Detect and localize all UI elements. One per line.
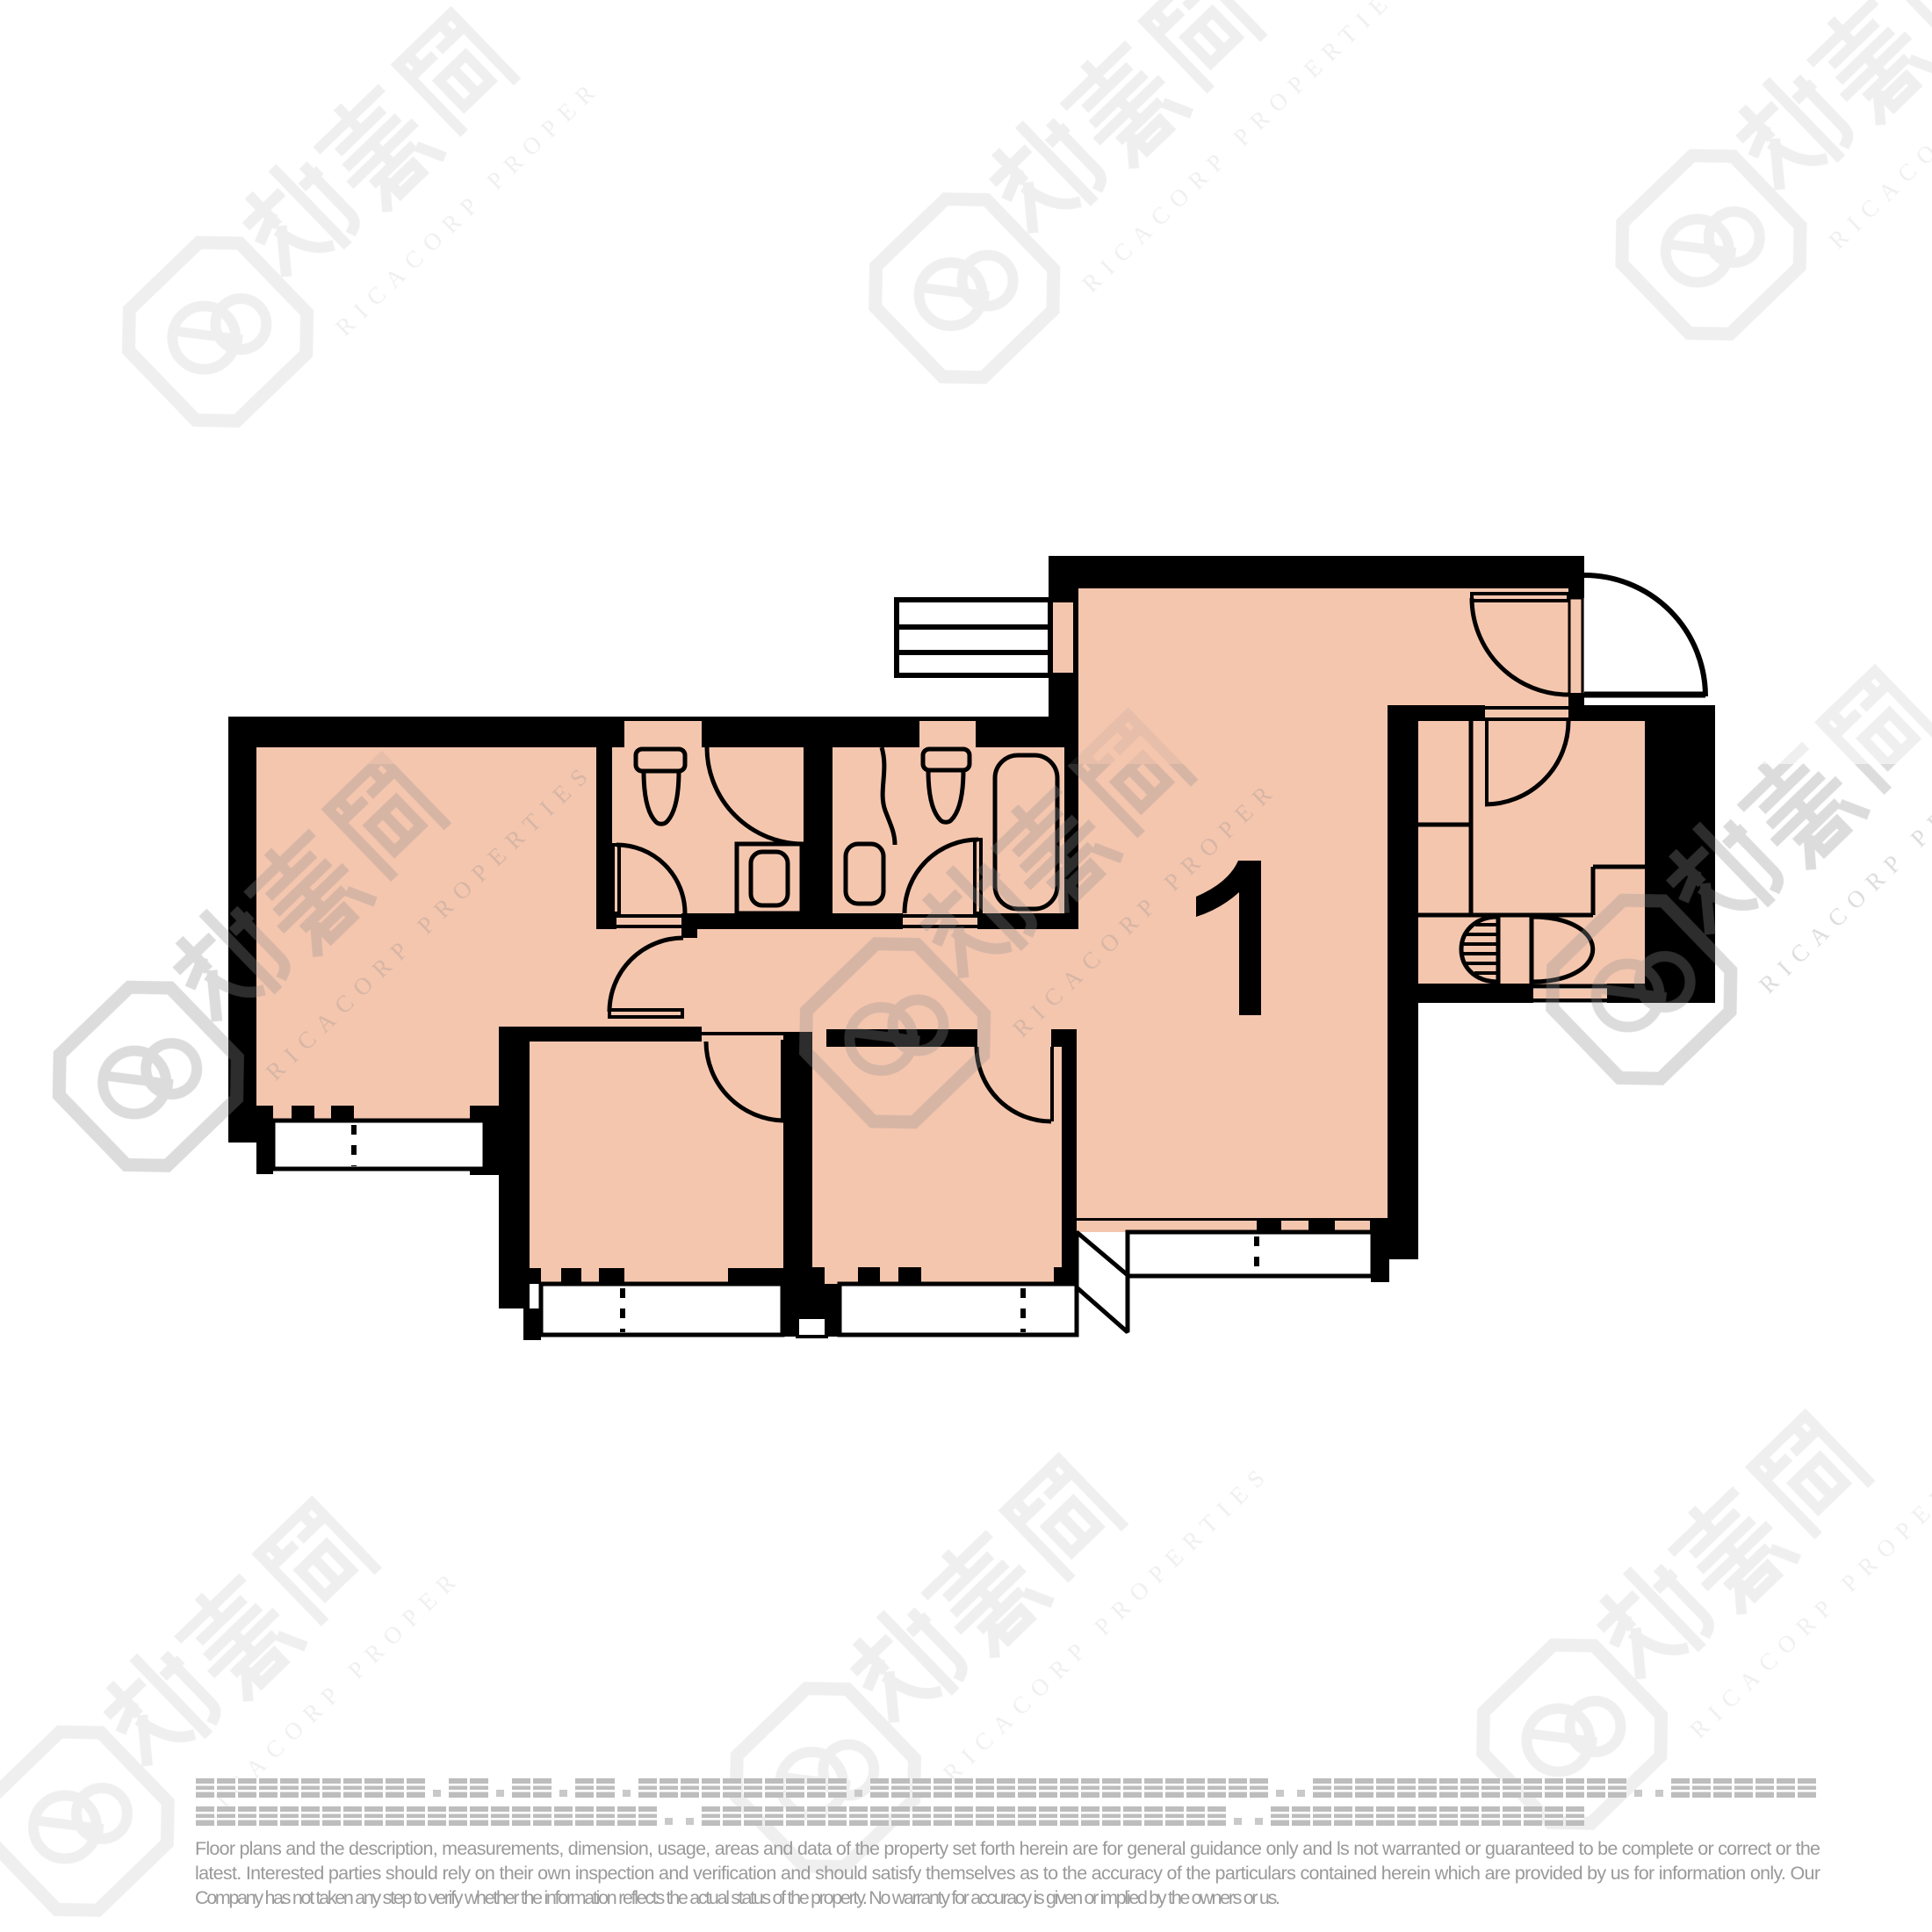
svg-text:Company has not taken any step: Company has not taken any step to verify… — [195, 1887, 1280, 1908]
svg-text:Floor plans and the descriptio: Floor plans and the description, measure… — [195, 1838, 1820, 1859]
svg-text:latest. Interested parties sho: latest. Interested parties should rely o… — [195, 1863, 1820, 1884]
